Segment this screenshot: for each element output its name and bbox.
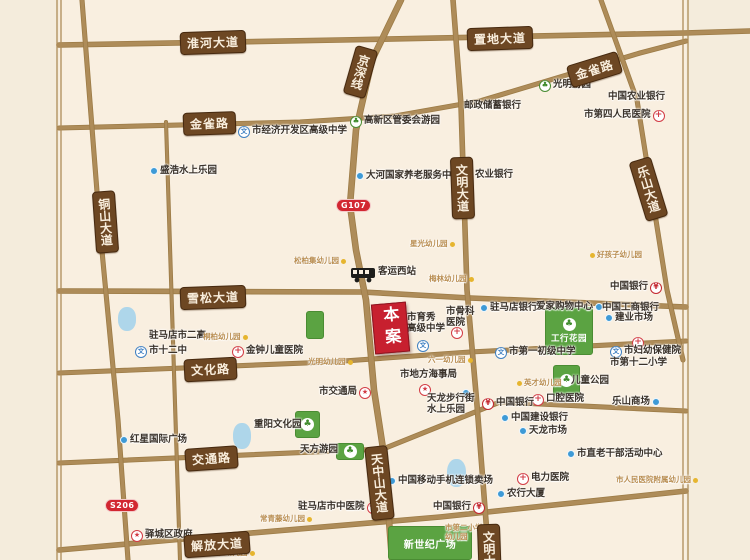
road-tongshan-avenue	[82, 0, 128, 560]
poi-childrens-park-label: 儿童公园	[571, 376, 609, 387]
kindergarten-dot-icon	[517, 381, 522, 386]
poi-label: 市第一初级中学	[509, 347, 576, 358]
poi-label: 大河国家养老服务中心	[366, 171, 461, 182]
poi-label: 英才幼儿园	[524, 379, 562, 388]
poi-label: 农行大厦	[507, 489, 545, 500]
park-tree-icon: ♣	[301, 418, 314, 431]
poi-label: 市交通局	[319, 387, 357, 398]
park-label: 工行花园	[551, 332, 587, 344]
poi-label: 光明幼儿园	[308, 358, 346, 367]
kindergarten-dot-icon	[693, 478, 698, 483]
poi-label: 中国移动手机连锁卖场	[398, 476, 493, 487]
poi-retired-cadres-activity-center: 市直老干部活动中心	[567, 449, 663, 460]
poi-label: 市妇幼保健院	[624, 346, 681, 357]
poi-china-construction-bank: 中国建设银行	[501, 413, 568, 424]
poi-label: 六一幼儿园	[428, 356, 466, 365]
poi-label: 建业市场	[615, 313, 653, 324]
poi-label: 市第四人民医院	[584, 110, 651, 121]
poi-label: 市地方海事局	[400, 370, 457, 381]
poi-xingguang-kindergarten: 星光幼儿园	[410, 240, 455, 249]
poi-postal-savings-bank: 邮政储蓄银行	[464, 101, 521, 112]
poi-label: 驻马店银行	[490, 303, 538, 314]
poi-label: 中国建设银行	[511, 413, 568, 424]
kindergarten-dot-icon	[243, 335, 248, 340]
poi-aijia-shopping-center: 爱家购物中心	[536, 302, 603, 313]
poi-label: 客运西站	[378, 267, 416, 278]
poi-label: 高新区管委会游园	[364, 116, 440, 127]
blue-dot-icon	[605, 314, 613, 322]
school-icon: 文	[238, 126, 250, 138]
poi-jianye-market: 建业市场	[605, 313, 653, 324]
blue-dot-icon	[501, 414, 509, 422]
poi-shenghao-water-park: 盛浩水上乐园	[150, 166, 217, 177]
poi-bank-of-china-south: 中国银行¥	[433, 502, 485, 514]
road-label-jinque-road-west: 金雀路	[183, 111, 237, 136]
poi-china-mobile-store: 中国移动手机连锁卖场	[388, 476, 493, 487]
poi-agricultural-bank-of-china: 中国农业银行	[608, 92, 665, 103]
poi-jinzhong-childrens-hospital: +金钟儿童医院	[232, 346, 303, 358]
road-label-tongshan-avenue: 铜山大道	[92, 190, 119, 253]
road-huaihe-zhidi-avenue	[59, 31, 750, 45]
route-shield-g107: G107	[336, 199, 371, 212]
poi-agricultural-bank: 农业银行	[475, 170, 513, 181]
poi-label: 重阳文化园	[254, 420, 302, 431]
government-star-icon: ★	[131, 530, 143, 542]
poi-label: 市十二中	[149, 346, 187, 357]
blue-dot-icon	[356, 172, 364, 180]
project-site-marker: 本案	[371, 302, 410, 355]
poi-leshan-mall: 乐山商场	[612, 397, 660, 408]
hospital-cross-icon: +	[517, 473, 529, 485]
poi-hi-tech-district-admin-garden: ♣高新区管委会游园	[350, 116, 440, 128]
poi-label: 天龙步行街 水上乐园	[427, 394, 475, 416]
school-icon: 文	[417, 340, 429, 352]
poi-label: 天龙市场	[529, 426, 567, 437]
poi-tianfang-garden-label: 天方游园	[300, 445, 338, 456]
poi-city-no2-senior-high: 驻马店市二高	[149, 331, 206, 342]
poi-label: 电力医院	[531, 473, 569, 484]
poi-city-no12-middle-school: 文市十二中	[135, 346, 187, 358]
park-green-block	[306, 311, 324, 339]
poi-city-no1-junior-middle-school: 文市第一初级中学	[495, 347, 576, 359]
road-label-jiefang-avenue: 解放大道	[183, 531, 250, 559]
government-star-icon: ★	[359, 387, 371, 399]
poi-label: 市经济开发区高级中学	[252, 126, 347, 137]
kindergarten-dot-icon	[348, 360, 353, 365]
poi-tianlong-market: 天龙市场	[519, 426, 567, 437]
poi-label: 农业银行	[475, 170, 513, 181]
road-label-wenhua-road: 文化路	[183, 357, 237, 383]
lake-lake-west	[118, 307, 136, 331]
blue-dot-icon	[497, 490, 505, 498]
poi-label: 市人民医院附属幼儿园	[616, 476, 691, 485]
poi-label: 驻马店市二高	[149, 331, 206, 342]
location-map: ♣工行花园♣♣♣新世纪广场淮河大道置地大道金雀路金雀路雪松大道文化路交通路解放大…	[0, 0, 750, 560]
poi-yingcai-kindergarten: 英才幼儿园	[517, 379, 562, 388]
blue-dot-icon	[120, 436, 128, 444]
poi-songbaiji-kindergarten: 松柏集幼儿园	[294, 257, 346, 266]
park-tree-icon: ♣	[563, 318, 576, 331]
park-tree-icon: ♣	[344, 445, 357, 458]
poi-label: 红星国际广场	[130, 435, 187, 446]
park-tree-icon: ♣	[539, 80, 551, 92]
road-label-huaihe-avenue: 淮河大道	[180, 30, 247, 55]
poi-maritime-affairs-bureau: 市地方海事局	[400, 370, 457, 381]
poi-tcm-hospital: 驻马店市中医院+	[298, 502, 379, 514]
poi-fourth-peoples-hospital: 市第四人民医院+	[584, 110, 665, 122]
poi-label: 中国银行	[433, 502, 471, 513]
poi-west-bus-station: 客运西站	[350, 267, 416, 283]
poi-label: 市第十二小学	[610, 358, 667, 369]
blue-dot-icon	[150, 167, 158, 175]
bus-icon	[350, 267, 376, 283]
poi-label: 中国农业银行	[608, 92, 665, 103]
poi-yuxiu-senior-high-school: 市育秀 高级中学	[407, 313, 445, 335]
poi-tianlong-walking-street: 天龙步行街 水上乐园	[427, 394, 475, 416]
poi-meilin-kindergarten: 梅林幼儿园	[429, 275, 474, 284]
poi-label: 邮政储蓄银行	[464, 101, 521, 112]
poi-label: 爱家购物中心	[536, 302, 593, 313]
kindergarten-dot-icon	[468, 358, 473, 363]
blue-dot-icon	[480, 304, 488, 312]
poi-orthopedic-hospital: 市骨科 医院	[446, 307, 475, 329]
poi-changqingteng-kindergarten: 常青藤幼儿园	[260, 515, 312, 524]
poi-label: 市育秀 高级中学	[407, 313, 445, 335]
poi-label: 口腔医院	[546, 394, 584, 405]
poi-city-edz-senior-high-school: 文市经济开发区高级中学	[238, 126, 347, 138]
poi-label: 天方游园	[300, 445, 338, 456]
route-shield-s206: S206	[105, 499, 139, 512]
park-tianfang-garden: ♣	[336, 443, 364, 460]
poi-label: 市直老干部活动中心	[577, 449, 663, 460]
poi-bank-of-china-middle: ¥中国银行	[482, 398, 534, 410]
kindergarten-dot-icon	[307, 517, 312, 522]
poi-guangming-kindergarten: 光明幼儿园	[308, 358, 353, 367]
poi-city-no12-primary-school: 市第十二小学	[610, 358, 667, 369]
poi-label: 儿童公园	[571, 376, 609, 387]
poi-label: 松柏集幼儿园	[294, 257, 339, 266]
poi-label: 常青藤幼儿园	[260, 515, 305, 524]
poi-hongxing-international-plaza: 红星国际广场	[120, 435, 187, 446]
poi-peoples-hospital-kindergarten: 市人民医院附属幼儿园	[616, 476, 698, 485]
poi-haohaizi-kindergarten: 好孩子幼儿园	[590, 251, 642, 260]
kindergarten-dot-icon	[450, 242, 455, 247]
poi-yuxiu-school-icon: 文	[417, 340, 429, 352]
park-tree-icon: ♣	[350, 116, 362, 128]
poi-transport-bureau: 市交通局★	[319, 387, 371, 399]
kindergarten-dot-icon	[590, 253, 595, 258]
poi-label: 好孩子幼儿园	[597, 251, 642, 260]
poi-zhumadian-bank: 驻马店银行	[480, 303, 538, 314]
hospital-cross-icon: +	[653, 110, 665, 122]
poi-tongbai-kindergarten: 桐柏幼儿园	[203, 333, 248, 342]
poi-label: 盛浩水上乐园	[160, 166, 217, 177]
poi-label: 金钟儿童医院	[246, 346, 303, 357]
poi-chongyang-culture-park-label: 重阳文化园	[254, 420, 302, 431]
poi-bank-of-china-northeast: 中国银行¥	[610, 282, 662, 294]
poi-label: 星光幼儿园	[410, 240, 448, 249]
poi-label: 桐柏幼儿园	[203, 333, 241, 342]
school-icon: 文	[135, 346, 147, 358]
blue-dot-icon	[567, 450, 575, 458]
bank-icon: ¥	[473, 502, 485, 514]
poi-dental-hospital: +口腔医院	[532, 394, 584, 406]
poi-electric-power-hospital: +电力医院	[517, 473, 569, 485]
kindergarten-dot-icon	[469, 277, 474, 282]
poi-label: 乐山商场	[612, 397, 650, 408]
kindergarten-dot-icon	[341, 259, 346, 264]
bank-icon: ¥	[482, 398, 494, 410]
poi-orthopedic-hospital-icon: +	[451, 327, 463, 339]
blue-dot-icon	[519, 427, 527, 435]
school-icon: 文	[495, 347, 507, 359]
poi-label: 市骨科 医院	[446, 307, 475, 329]
kindergarten-dot-icon	[250, 551, 255, 556]
poi-label: 中国银行	[610, 282, 648, 293]
poi-label: 梅林幼儿园	[429, 275, 467, 284]
road-label-wenming-avenue: 文明大道	[450, 157, 475, 220]
poi-liuyi-kindergarten: 六一幼儿园	[428, 356, 473, 365]
road-label-zhidi-avenue: 置地大道	[467, 26, 534, 51]
blue-dot-icon	[652, 398, 660, 406]
road-label-jiaotong-road: 交通路	[184, 445, 238, 472]
poi-label: 驻马店市中医院	[298, 502, 365, 513]
road-label-xuesong-avenue: 雪松大道	[180, 285, 247, 310]
poi-dahe-elderly-care-center: 大河国家养老服务中心	[356, 171, 461, 182]
hospital-cross-icon: +	[451, 327, 463, 339]
poi-label: 中国银行	[496, 398, 534, 409]
poi-abc-tower: 农行大厦	[497, 489, 545, 500]
road-label-wenming-avenue-south: 文明大道	[477, 524, 502, 560]
bank-icon: ¥	[650, 282, 662, 294]
